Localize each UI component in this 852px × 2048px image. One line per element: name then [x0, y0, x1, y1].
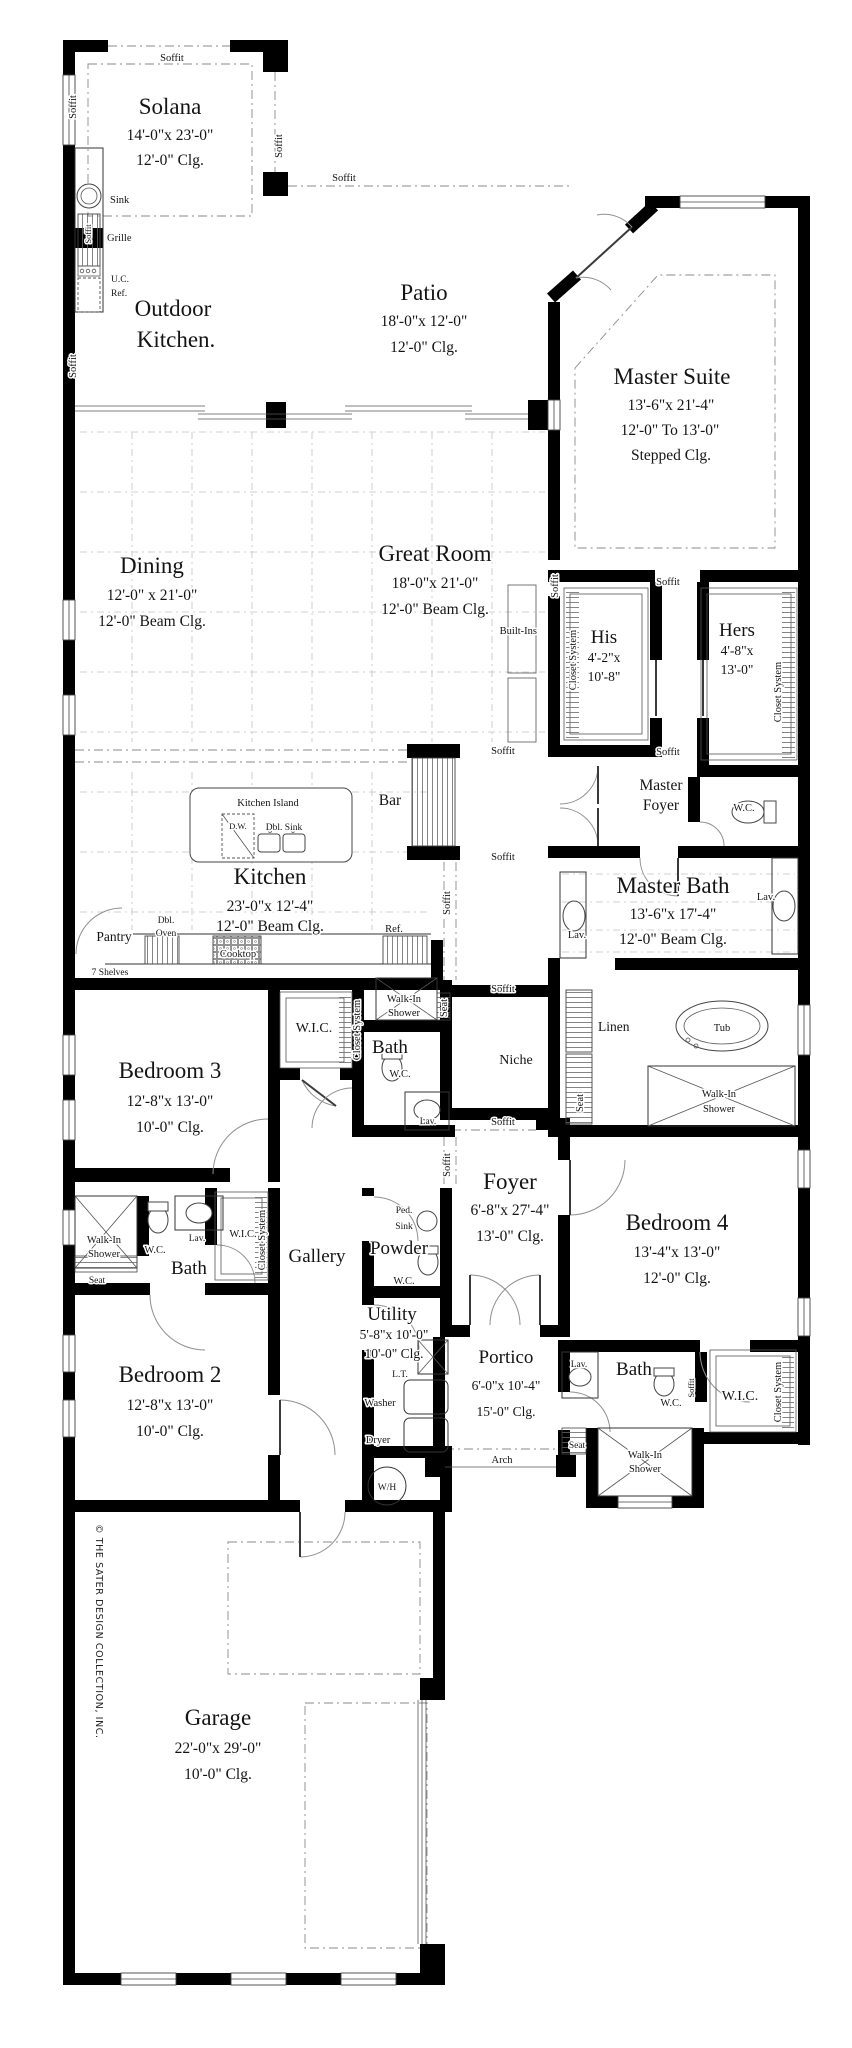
label-dbl-sink: Dbl. Sink: [266, 823, 303, 833]
label-wic4: W.I.C.: [722, 1389, 758, 1404]
label-closet-system-wic4: Closet System: [773, 1362, 784, 1422]
label-master-bath-dim: 13'-6"x 17'-4": [630, 906, 717, 923]
label-built-ins: Built-Ins: [500, 626, 537, 637]
label-master-suite-clg2: Stepped Clg.: [631, 447, 711, 464]
label-walkin-bath2-2: Shower: [88, 1249, 121, 1260]
label-walkin-bath3-2: Shower: [388, 1008, 421, 1019]
label-garage-clg: 10'-0" Clg.: [184, 1766, 252, 1783]
label-portico: Portico: [479, 1347, 534, 1368]
label-bedroom3: Bedroom 3: [119, 1058, 222, 1083]
label-wh: W/H: [378, 1483, 397, 1493]
label-gallery: Gallery: [289, 1246, 346, 1267]
label-wic2: W.I.C.: [229, 1229, 256, 1240]
label-wc-bath3: W.C.: [389, 1069, 410, 1080]
label-dryer: Dryer: [366, 1435, 391, 1446]
label-bedroom3-clg: 10'-0" Clg.: [136, 1119, 204, 1136]
label-walkin-master-1: Walk-In: [702, 1089, 737, 1100]
bar-counter: [412, 758, 455, 846]
label-master-bath: Master Bath: [616, 873, 730, 898]
label-great-room-dim: 18'-0"x 21'-0": [392, 575, 479, 592]
label-soffit-bar-bottom: Soffit: [491, 852, 515, 863]
label-grille: Grille: [107, 233, 132, 244]
label-closet-system-hers: Closet System: [773, 662, 784, 722]
label-master-suite-clg1: 12'-0" To 13'-0": [621, 422, 720, 439]
label-soffit-foyer: Soffit: [442, 1153, 453, 1177]
label-uc: U.C.: [111, 275, 129, 285]
label-bedroom2-clg: 10'-0" Clg.: [136, 1423, 204, 1440]
label-great-room: Great Room: [378, 541, 491, 566]
label-soffit-his-hers-bottom: Soffit: [656, 747, 680, 758]
label-bedroom2-dim: 12'-8"x 13'-0": [127, 1397, 214, 1414]
label-hers-dim1: 4'-8"x: [721, 643, 754, 658]
label-sink: Sink: [110, 195, 130, 206]
label-soffit-great-room-right: Soffit: [550, 574, 561, 598]
label-walkin-bath4-1: Walk-In: [628, 1450, 663, 1461]
label-wc-master: W.C.: [733, 803, 754, 814]
label-lt: L.T.: [392, 1370, 408, 1380]
label-cooktop: Cooktop: [220, 949, 256, 960]
label-solana: Solana: [139, 94, 202, 119]
label-ped-sink: Sink: [395, 1222, 413, 1232]
label-kitchen: Kitchen: [234, 864, 307, 889]
label-lav-bath3: Lav.: [420, 1117, 437, 1127]
label-arch: Arch: [492, 1455, 514, 1466]
label-dining-dim: 12'-0" x 21'-0": [107, 587, 198, 604]
label-soffit-niche-bottom: Soffit: [491, 1117, 515, 1128]
label-wic3: W.I.C.: [296, 1021, 332, 1036]
label-soffit-niche-top: Soffit: [491, 984, 515, 995]
label-soffit-solana-top: Soffit: [160, 53, 184, 64]
label-dining-clg: 12'-0" Beam Clg.: [98, 613, 206, 630]
label-soffit-patio: Soffit: [332, 173, 356, 184]
label-tub: Tub: [714, 1023, 731, 1034]
label-portico-clg: 15'-0" Clg.: [477, 1404, 536, 1419]
label-lav-bath2: Lav.: [189, 1234, 206, 1244]
label-master-suite-dim: 13'-6"x 21'-4": [628, 397, 715, 414]
label-seat-master: Seat: [575, 1094, 586, 1112]
label-kitchen-dim: 23'-0"x 12'-4": [227, 898, 314, 915]
label-soffit-solana-left: Soffit: [68, 95, 79, 119]
label-master-suite: Master Suite: [614, 364, 731, 389]
label-niche: Niche: [499, 1053, 532, 1068]
label-closet-system-wic2: Closet System: [257, 1210, 268, 1270]
label-master-foyer-1: Master: [639, 777, 683, 794]
label-utility-dim: 5'-8"x 10'-0": [360, 1327, 429, 1342]
label-patio: Patio: [400, 280, 447, 305]
label-wc-bath4: W.C.: [660, 1398, 681, 1409]
label-kitchen-clg: 12'-0" Beam Clg.: [216, 918, 324, 935]
label-utility-clg: 10'-0" Clg.: [365, 1346, 424, 1361]
label-oven: Oven: [156, 929, 177, 939]
label-washer: Washer: [364, 1398, 396, 1409]
lav-left: [563, 901, 585, 931]
label-closet-system-his: Closet System: [568, 630, 579, 690]
label-walkin-master-2: Shower: [703, 1104, 736, 1115]
label-soffit-grille: Soffit: [83, 224, 93, 244]
label-soffit-his-hers-top: Soffit: [656, 577, 680, 588]
label-soffit-solana-right: Soffit: [274, 134, 285, 158]
label-his-dim1: 4'-2"x: [588, 650, 621, 665]
label-foyer-clg: 13'-0" Clg.: [476, 1228, 544, 1245]
label-his: His: [591, 627, 617, 648]
label-pantry: Pantry: [96, 929, 131, 944]
label-solana-clg: 12'-0" Clg.: [136, 152, 204, 169]
label-foyer-dim: 6'-8"x 27'-4": [471, 1202, 550, 1219]
master-shower-seat: [566, 1054, 592, 1124]
label-soffit-hall-kitchen: Soffit: [442, 891, 453, 915]
sink-bowl-left: [258, 834, 280, 852]
label-his-dim2: 10'-8": [588, 669, 621, 684]
label-utility: Utility: [367, 1304, 417, 1325]
refrigerator-fixture: [383, 936, 427, 964]
label-bedroom4-clg: 12'-0" Clg.: [643, 1270, 711, 1287]
label-bedroom3-dim: 12'-8"x 13'-0": [127, 1093, 214, 1110]
label-bath4: Bath: [616, 1359, 652, 1380]
label-patio-clg: 12'-0" Clg.: [390, 339, 458, 356]
label-seat-bath2: Seat: [89, 1276, 106, 1286]
label-closet-system-wic3: Closet System: [352, 1000, 363, 1060]
label-powder: Powder: [370, 1238, 429, 1259]
label-lav-master-left: Lav.: [568, 930, 586, 941]
lav-right: [773, 891, 795, 921]
linen-shelves: [566, 990, 592, 1052]
label-uc-ref: Ref.: [111, 288, 127, 299]
copyright-text: © THE SATER DESIGN COLLECTION, INC.: [93, 1524, 104, 1739]
label-outdoor-kitchen-1: Outdoor: [135, 296, 212, 321]
label-wc-bath2: W.C.: [144, 1245, 165, 1256]
label-bath3: Bath: [372, 1037, 408, 1058]
label-walkin-bath4-2: Shower: [629, 1464, 662, 1475]
label-7-shelves: 7 Shelves: [92, 968, 129, 978]
label-soffit-bar-top: Soffit: [491, 746, 515, 757]
label-wc-powder: W.C.: [393, 1276, 414, 1287]
double-oven-fixture: [145, 936, 179, 964]
label-great-room-clg: 12'-0" Beam Clg.: [381, 601, 489, 618]
label-seat-bath3: Seat: [439, 999, 450, 1017]
label-patio-dim: 18'-0"x 12'-0": [381, 313, 468, 330]
floor-plan-page: Solana 14'-0"x 23'-0" 12'-0" Clg. Outdoo…: [0, 0, 852, 2048]
label-dw: D.W.: [229, 821, 247, 831]
sink-bowl-right: [283, 834, 305, 852]
label-ped: Ped.: [396, 1206, 413, 1216]
label-hers-dim2: 13'-0": [721, 662, 754, 677]
label-outdoor-kitchen-2: Kitchen.: [137, 327, 216, 352]
label-lav-bath4: Lav.: [571, 1360, 588, 1370]
label-master-bath-clg: 12'-0" Beam Clg.: [619, 931, 727, 948]
pedestal-sink: [417, 1211, 437, 1231]
label-walkin-bath3-1: Walk-In: [387, 994, 422, 1005]
label-portico-dim: 6'-0"x 10'-4": [472, 1378, 541, 1393]
label-walkin-bath2-1: Walk-In: [87, 1235, 122, 1246]
label-lav-master-right: Lav.: [757, 892, 775, 903]
label-bath2: Bath: [171, 1258, 207, 1279]
label-foyer: Foyer: [483, 1169, 537, 1194]
label-ref: Ref.: [385, 924, 403, 935]
label-soffit-outdoor-kitchen: Soffit: [68, 354, 79, 378]
label-garage: Garage: [185, 1705, 251, 1730]
label-dining: Dining: [120, 553, 184, 578]
label-dbl: Dbl.: [158, 916, 175, 926]
label-solana-dim: 14'-0"x 23'-0": [127, 127, 214, 144]
label-seat-bath4: Seat: [569, 1441, 586, 1451]
label-linen: Linen: [598, 1019, 630, 1034]
label-soffit-bath4: Soffit: [686, 1378, 696, 1398]
label-master-foyer-2: Foyer: [643, 797, 680, 814]
label-hers: Hers: [719, 620, 755, 641]
label-bar: Bar: [379, 792, 402, 809]
label-bedroom2: Bedroom 2: [119, 1362, 222, 1387]
label-garage-dim: 22'-0"x 29'-0": [175, 1740, 262, 1757]
label-bedroom4: Bedroom 4: [626, 1210, 729, 1235]
floor-plan-drawing: Solana 14'-0"x 23'-0" 12'-0" Clg. Outdoo…: [0, 0, 852, 2048]
label-bedroom4-dim: 13'-4"x 13'-0": [634, 1244, 721, 1261]
label-kitchen-island: Kitchen Island: [237, 798, 299, 809]
